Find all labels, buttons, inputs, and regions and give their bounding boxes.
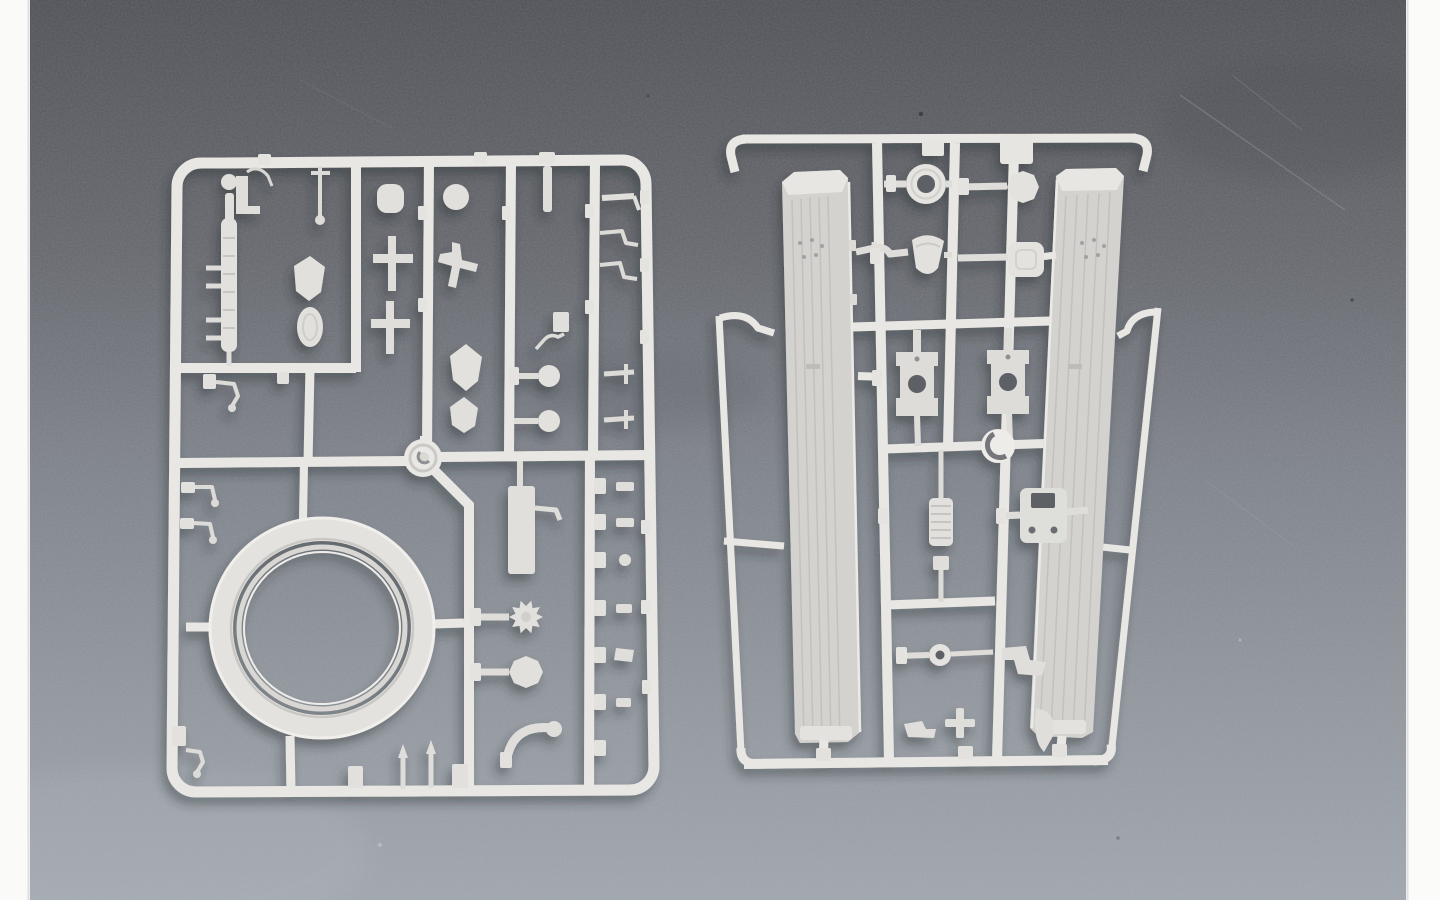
gate-pad [878,508,888,524]
dust-speck [1350,298,1353,301]
gate-pad [594,647,606,663]
gate-pad [203,374,216,389]
gate-pad [418,206,427,220]
gate-pad [585,300,594,314]
runner-stub [1102,547,1130,550]
sprue-runner [427,161,429,452]
bracket-ball [193,770,201,778]
mantlet-hole [1029,527,1036,534]
gate-pad [470,663,481,681]
small-ring-hole [936,651,945,660]
gate-pad [872,370,882,386]
gate-pad [172,726,186,746]
gate-pad [594,552,606,568]
sprue-runner [948,143,955,447]
bar-part [543,166,552,212]
gate-pad [500,752,512,768]
panel-hole [1092,238,1096,242]
panel-hole [814,253,818,257]
fitting-pin-hole [1006,355,1011,360]
panel-mark [806,364,820,369]
hex-nut-part [1007,171,1039,203]
panel-hole [820,244,824,248]
gate-pad [594,740,606,756]
sprue-runner [744,760,1108,764]
fitting-hole [908,375,926,393]
bracket-ball [209,536,217,544]
sprue-runner [589,456,590,789]
gate-pad [539,152,555,164]
curved-arm-end [546,721,562,737]
block-part [452,764,468,788]
bracket-ball [228,404,236,412]
gate-pad [642,680,651,694]
gate-pad [474,152,487,163]
gate-pad [594,694,606,710]
gate-pad [418,298,427,312]
fitting-pin-hole [915,357,920,362]
fitting-part [616,698,631,707]
gate-pad [181,482,195,493]
gate-pad [509,367,519,385]
gate-pad [886,175,896,192]
sprue-runner [180,461,406,463]
small-stub [1067,510,1088,512]
left-white-bar [0,0,30,900]
fitting-hole [999,373,1017,391]
rounded-box-part [1008,242,1044,277]
dust-speck [378,843,382,847]
antenna-ball [315,215,325,225]
runner-stub [724,541,784,546]
gate-pad [258,154,271,165]
gate-pad [640,330,649,344]
panel-tab [850,294,857,305]
panel-hole [810,238,814,242]
gate-pad [585,204,594,218]
sprue-runner [852,321,1050,327]
hull-panel-cap [1056,168,1124,191]
sprue-runner [438,455,650,457]
gate-pad [870,248,880,264]
sprue-runner [308,368,310,463]
right-white-bar [1406,0,1440,900]
sprue-runner [432,623,464,624]
dust-speck [1238,638,1241,641]
dome-part [377,184,404,213]
panel-foot [800,726,852,740]
background-smudge [1160,60,1440,180]
gate-pad [958,178,969,195]
gate-pad [641,520,650,534]
gate-pad [641,600,650,614]
sprue-runner [290,736,291,792]
panel-hole [798,241,802,245]
gate-tab [1000,134,1033,164]
block-part [933,556,949,570]
dust-speck [647,95,650,98]
gate-pad [502,206,511,220]
plate-part [508,486,535,574]
hook-bar-part [602,196,634,198]
small-stub [917,416,918,446]
disc-part [538,365,560,387]
fitting-part [616,482,634,491]
gate-pad [896,647,907,664]
gate-pad [816,748,831,761]
mantlet-hole [1051,527,1058,534]
small-stub [951,652,993,654]
cross-part [945,719,975,727]
fitting-part [616,604,632,613]
panel-tab [849,240,856,251]
dust-speck [919,112,923,116]
small-stub [958,257,1008,258]
gate-pad [470,608,481,626]
block-part [553,312,569,332]
gate-pad [996,508,1006,524]
dust-speck [1116,836,1120,840]
panel-hole [1080,241,1084,245]
gate-pad [922,141,944,156]
fitting-part [619,554,631,566]
panel-hole [802,255,806,259]
sprue-runner [303,463,304,520]
sprocket-hub [521,612,531,622]
scene-svg [0,0,1440,900]
mantlet-opening [1031,493,1055,508]
gate-pad [594,478,606,494]
panel-mark [1068,364,1082,369]
idler-wheel-hole [917,175,935,193]
gate-pad [640,190,649,204]
gate-pad [277,372,289,384]
dome-part [443,184,469,210]
fitting-part [616,518,634,527]
tee-part [604,372,634,374]
sprue-runner [509,161,511,454]
gate-pad [958,746,973,759]
tee-part [604,418,634,420]
barrel-tip [221,174,237,190]
gate-pad [1052,744,1067,757]
barrel-muzzle [225,193,234,221]
fitting-part [614,648,634,662]
sprue-runner [884,443,1060,449]
gate-pad [180,518,194,529]
panel-hole [1102,244,1106,248]
block-part [348,766,363,788]
gate-pad [640,258,649,272]
gate-pad [594,600,606,616]
panel-hole [1096,253,1100,257]
disc-part [538,410,560,432]
bracket-ball [211,499,219,507]
photo-of-model-kit-sprues [0,0,1440,900]
gate-pad [594,514,606,530]
hull-panel-cap [782,170,848,195]
sprue-runner [742,138,1136,139]
panel-hole [1084,255,1088,259]
